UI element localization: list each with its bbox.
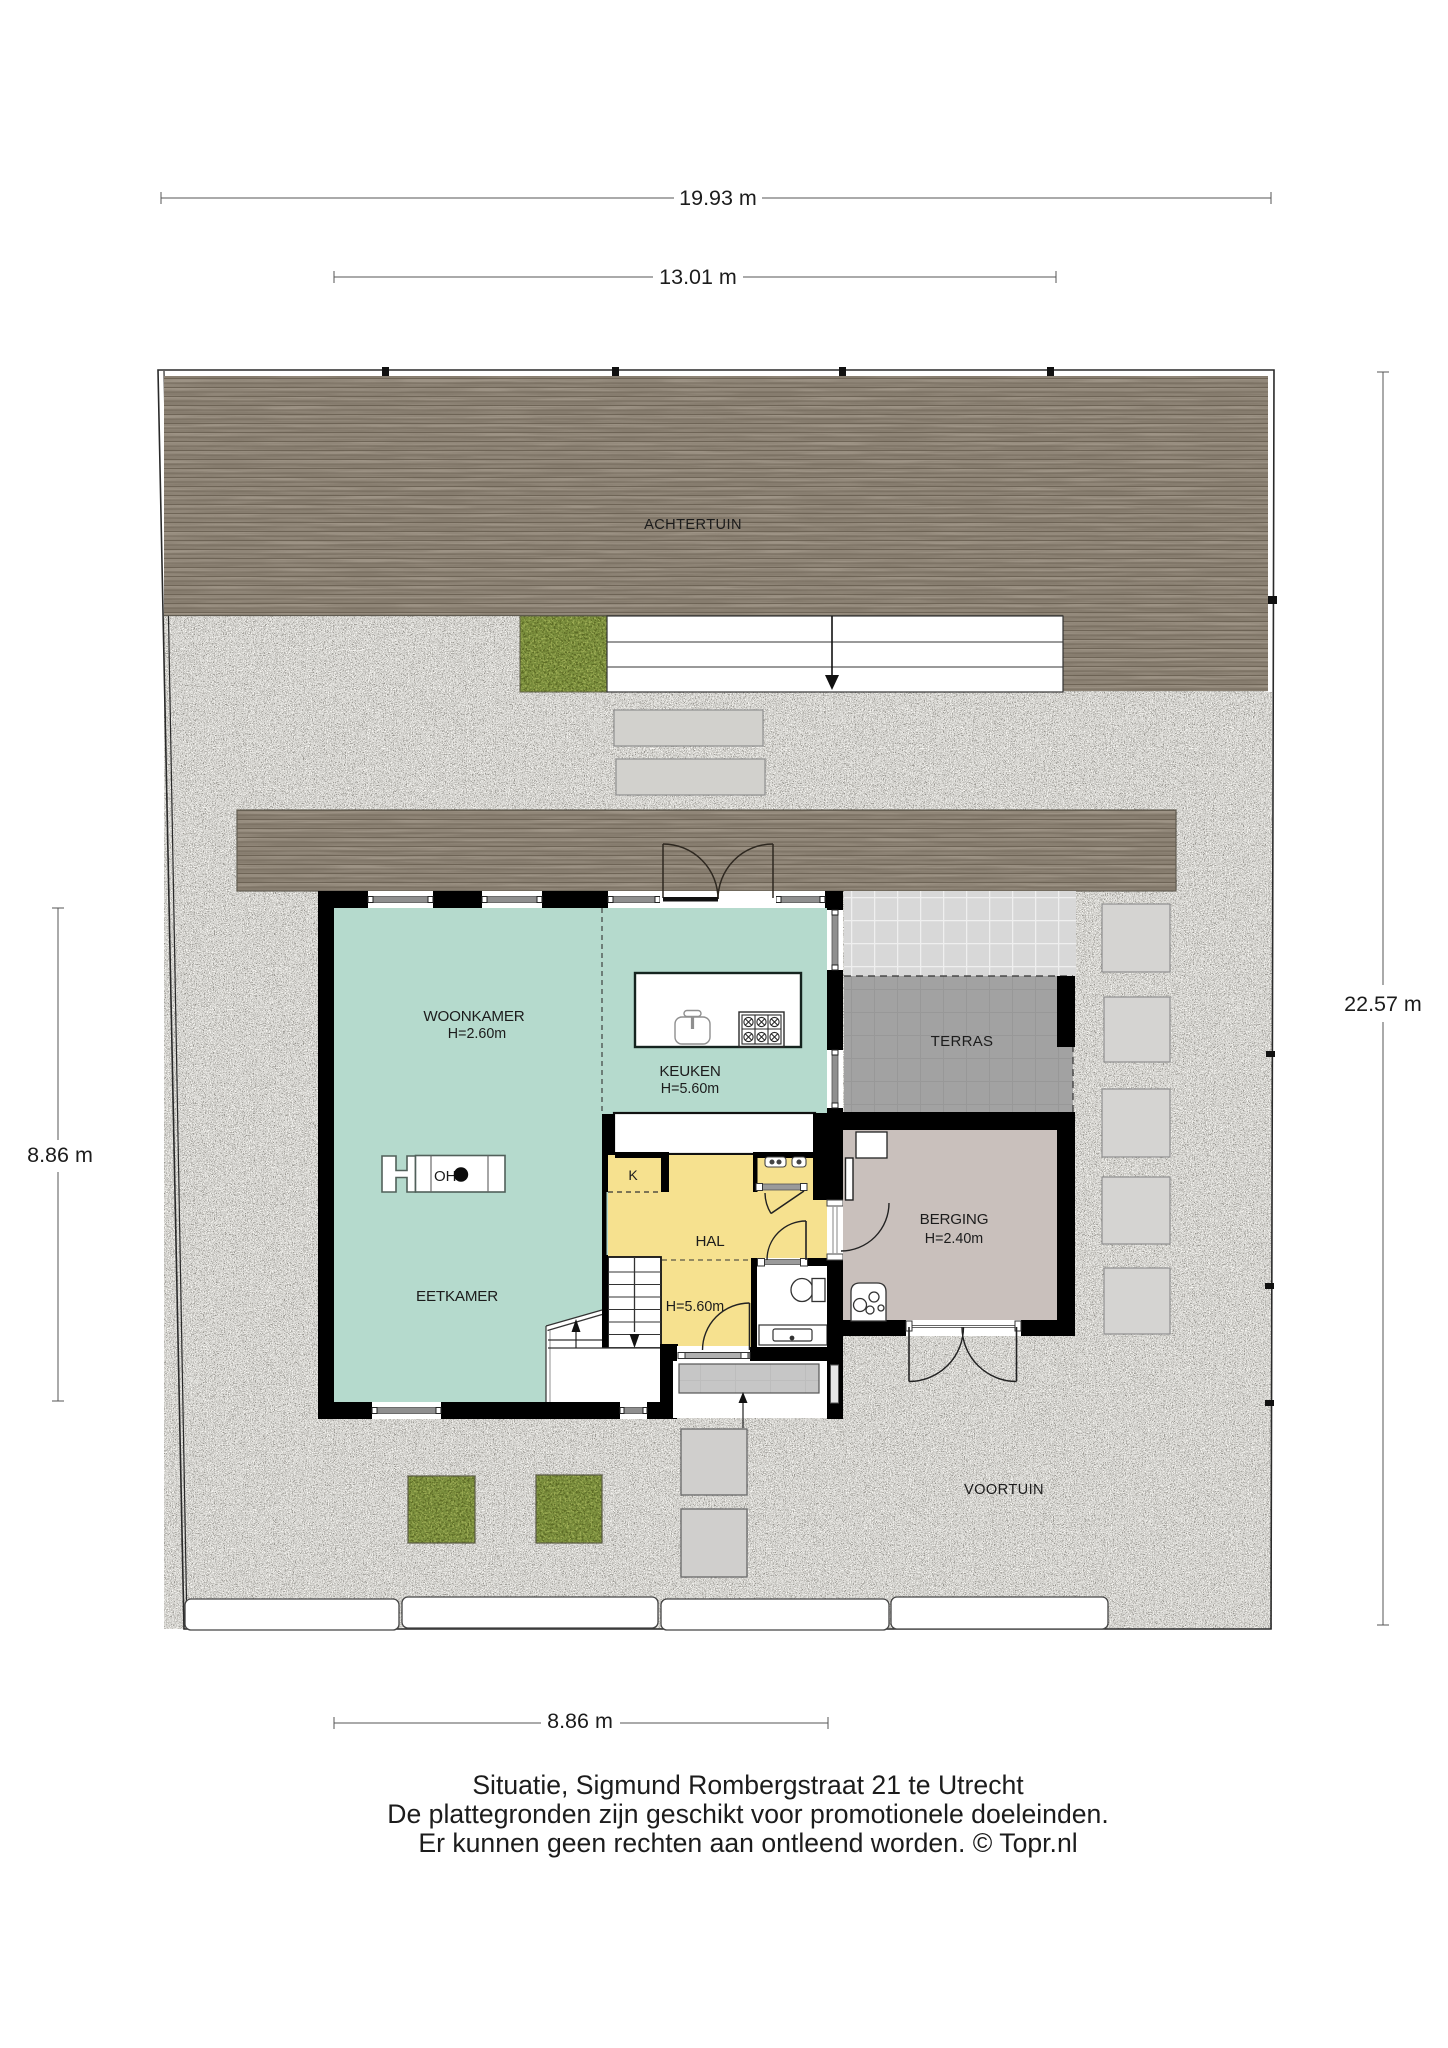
svg-text:EETKAMER: EETKAMER — [416, 1288, 498, 1305]
svg-text:13.01 m: 13.01 m — [659, 265, 737, 289]
svg-text:WOONKAMER: WOONKAMER — [423, 1008, 524, 1025]
svg-text:22.57 m: 22.57 m — [1344, 992, 1422, 1016]
svg-text:19.93 m: 19.93 m — [679, 186, 757, 210]
svg-text:VOORTUIN: VOORTUIN — [964, 1482, 1044, 1498]
svg-text:BERGING: BERGING — [920, 1211, 989, 1228]
svg-text:OH: OH — [434, 1168, 457, 1185]
svg-text:TERRAS: TERRAS — [931, 1033, 994, 1050]
svg-text:K: K — [628, 1167, 638, 1183]
svg-text:H=5.60m: H=5.60m — [666, 1299, 724, 1315]
svg-text:De plattegronden zijn geschikt: De plattegronden zijn geschikt voor prom… — [387, 1799, 1108, 1829]
svg-text:Er kunnen geen rechten aan ont: Er kunnen geen rechten aan ontleend word… — [418, 1828, 1077, 1858]
svg-text:Situatie, Sigmund Rombergstraa: Situatie, Sigmund Rombergstraat 21 te Ut… — [472, 1770, 1024, 1800]
svg-text:ACHTERTUIN: ACHTERTUIN — [644, 517, 742, 533]
svg-text:8.86 m: 8.86 m — [547, 1709, 613, 1733]
svg-text:8.86 m: 8.86 m — [27, 1143, 93, 1167]
svg-text:HAL: HAL — [696, 1233, 725, 1250]
svg-text:KEUKEN: KEUKEN — [659, 1063, 720, 1080]
svg-text:H=2.40m: H=2.40m — [925, 1231, 983, 1247]
svg-text:H=5.60m: H=5.60m — [661, 1081, 719, 1097]
svg-text:H=2.60m: H=2.60m — [448, 1026, 506, 1042]
